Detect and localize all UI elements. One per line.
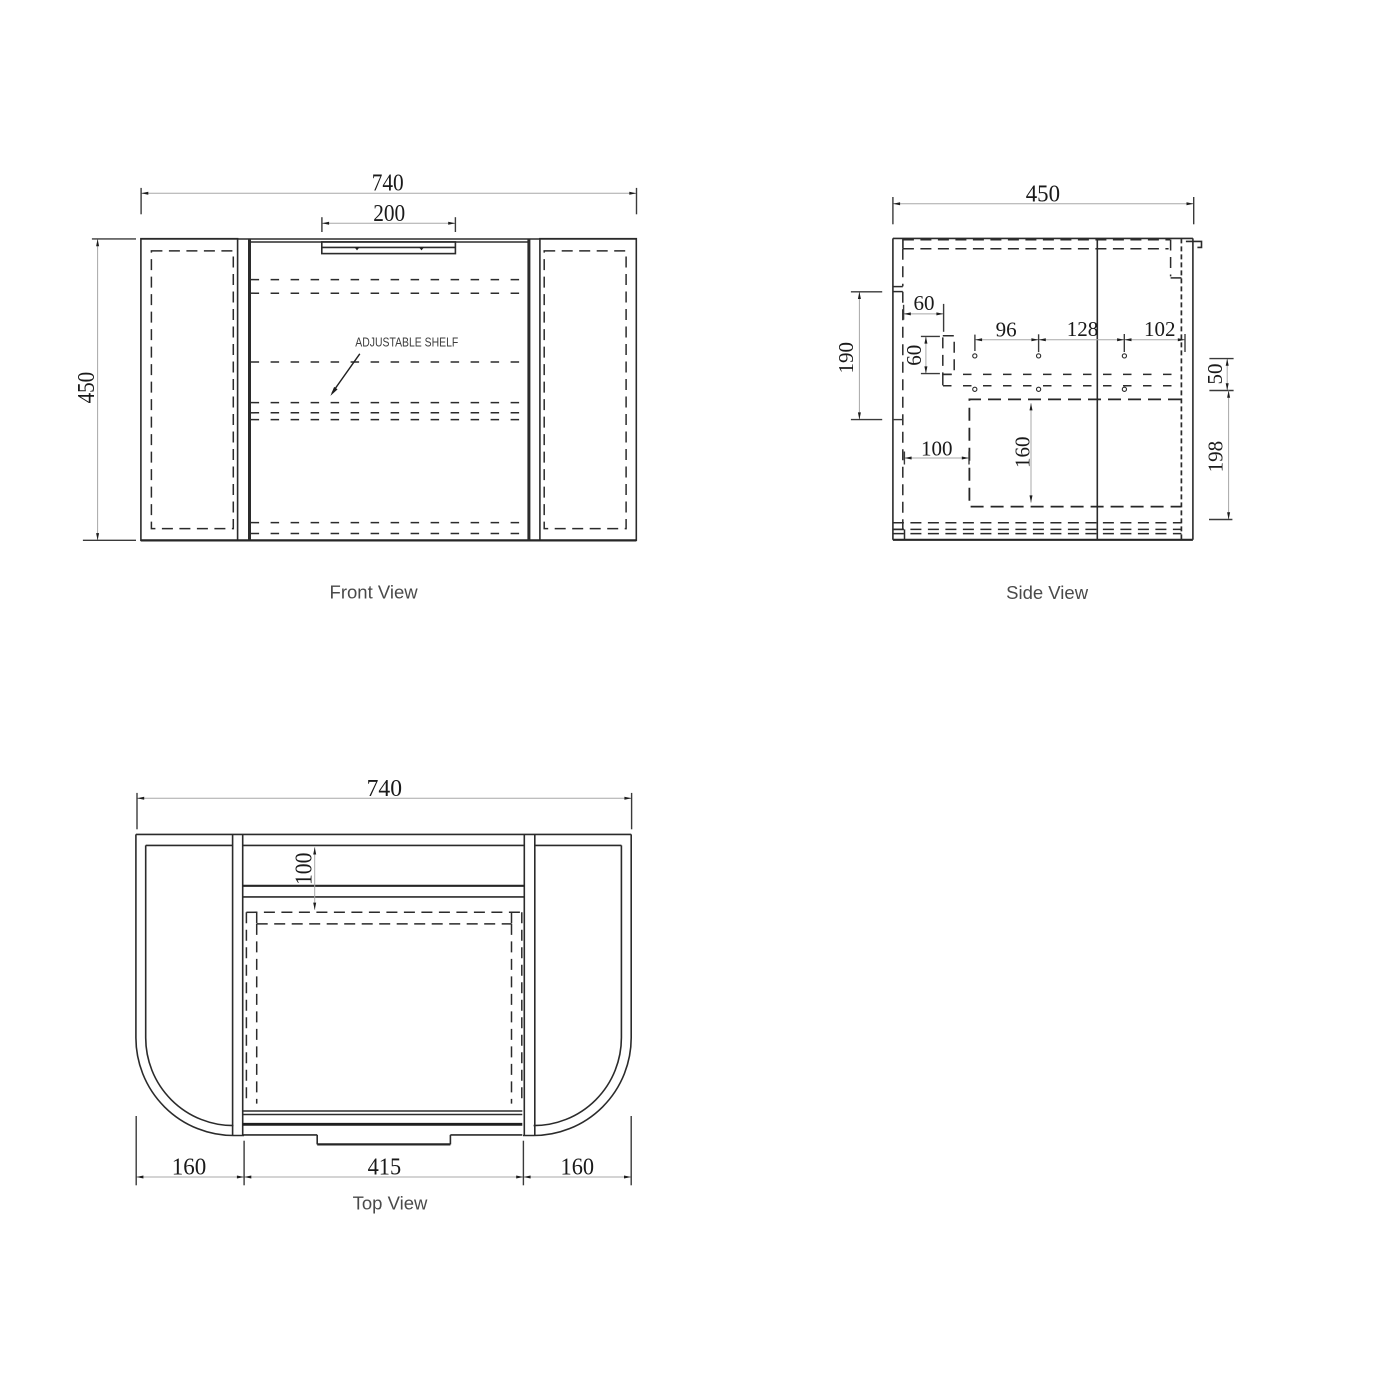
svg-text:Side View: Side View bbox=[1006, 582, 1089, 603]
svg-text:60: 60 bbox=[914, 291, 935, 315]
svg-text:198: 198 bbox=[1204, 441, 1228, 473]
svg-text:190: 190 bbox=[834, 342, 858, 374]
svg-text:415: 415 bbox=[368, 1155, 402, 1181]
svg-text:Front View: Front View bbox=[330, 582, 419, 603]
svg-text:160: 160 bbox=[1011, 437, 1035, 469]
svg-text:160: 160 bbox=[172, 1155, 207, 1181]
svg-text:128: 128 bbox=[1067, 317, 1099, 341]
svg-text:102: 102 bbox=[1144, 317, 1176, 341]
svg-text:100: 100 bbox=[291, 853, 317, 886]
svg-text:740: 740 bbox=[372, 171, 404, 197]
svg-text:ADJUSTABLE SHELF: ADJUSTABLE SHELF bbox=[355, 335, 458, 349]
svg-text:450: 450 bbox=[74, 372, 100, 404]
svg-text:Top View: Top View bbox=[353, 1193, 428, 1214]
svg-text:100: 100 bbox=[921, 436, 953, 460]
svg-text:200: 200 bbox=[373, 201, 405, 227]
svg-text:60: 60 bbox=[902, 345, 926, 366]
svg-text:740: 740 bbox=[367, 776, 402, 802]
svg-text:96: 96 bbox=[996, 318, 1017, 342]
svg-text:450: 450 bbox=[1026, 181, 1060, 207]
svg-text:50: 50 bbox=[1203, 364, 1227, 385]
svg-text:160: 160 bbox=[561, 1155, 595, 1181]
